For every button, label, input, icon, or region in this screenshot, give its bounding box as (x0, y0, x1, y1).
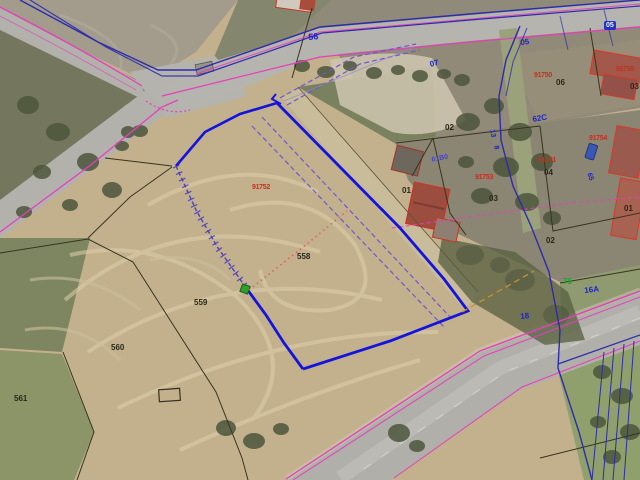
parcel-hatched-edge (176, 166, 247, 289)
cadastral-aerial-map-view[interactable]: 56050706917500262C13861B0917510491753010… (0, 0, 640, 480)
map-canvas (0, 0, 640, 480)
field-shed-outline (159, 388, 181, 401)
